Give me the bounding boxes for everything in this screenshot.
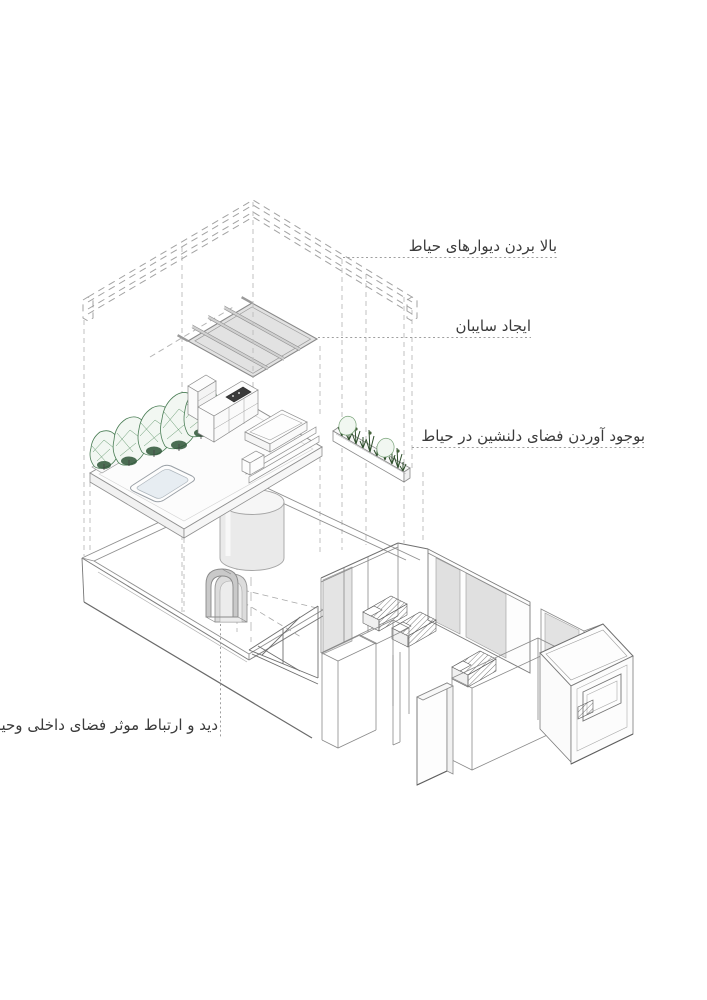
canopy-panel — [178, 297, 317, 377]
view-axis-lines — [243, 590, 333, 637]
architectural-diagram-page: بالا بردن دیوارهای حیاط ایجاد سایبان بوج… — [0, 0, 707, 1000]
wall-planter — [333, 416, 410, 482]
bush — [339, 416, 356, 435]
label-pleasant-space: بوجود آوردن فضای دلنشین در حیاط — [421, 427, 645, 445]
label-view-connection: دید و ارتباط موثر فضای داخلی وحیاط — [0, 716, 218, 734]
label-raise-walls: بالا بردن دیوارهای حیاط — [409, 237, 557, 255]
truss-frame — [249, 606, 318, 684]
bush — [377, 438, 394, 457]
arched-doorway — [206, 569, 247, 622]
door-panel — [417, 683, 453, 785]
label-create-canopy: ایجاد سایبان — [456, 317, 531, 335]
house-interior — [249, 543, 633, 785]
roof-terrace — [90, 375, 322, 538]
exploded-axonometric-drawing: بالا بردن دیوارهای حیاط ایجاد سایبان بوج… — [0, 0, 707, 1000]
